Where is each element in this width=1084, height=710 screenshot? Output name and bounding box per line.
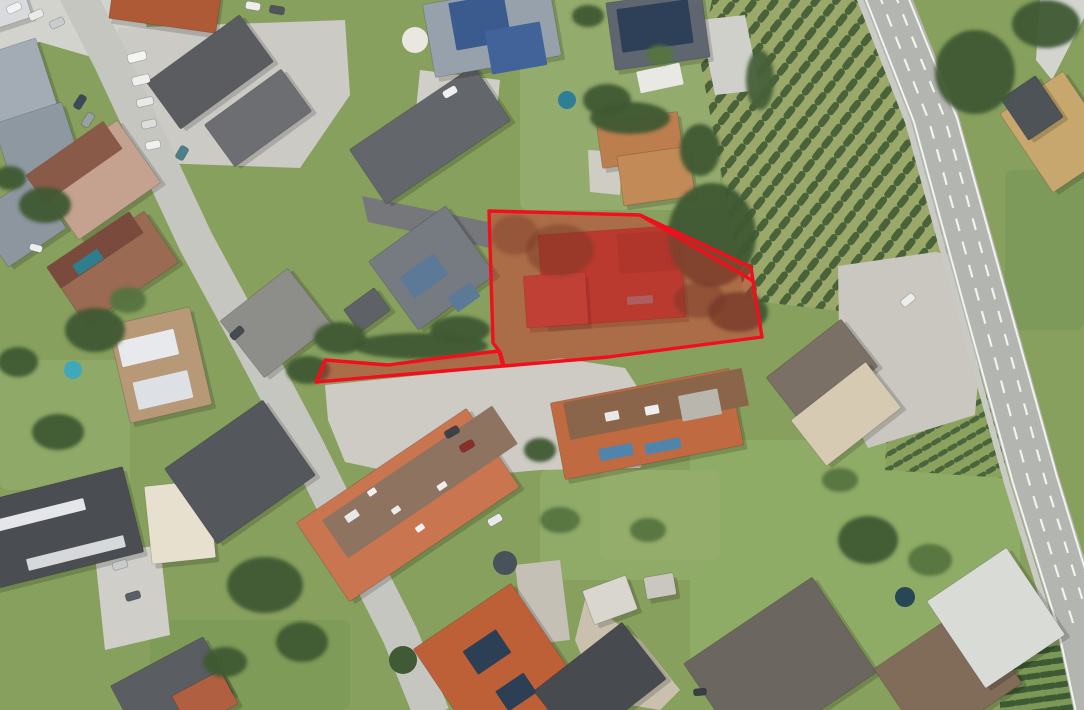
parked-car xyxy=(693,688,707,696)
aerial-map-view[interactable] xyxy=(0,0,1084,710)
tree xyxy=(590,102,670,134)
tree xyxy=(630,518,666,542)
tree xyxy=(227,557,303,613)
tree xyxy=(276,622,328,662)
tree xyxy=(746,50,774,110)
tree xyxy=(572,5,604,27)
tree xyxy=(935,30,1015,114)
round-pool xyxy=(64,361,82,379)
grass-patch xyxy=(600,470,720,560)
tree xyxy=(908,544,952,576)
pool-cover xyxy=(493,551,517,575)
tree xyxy=(19,187,71,223)
street-tree xyxy=(389,646,417,674)
tree xyxy=(430,316,490,344)
tree xyxy=(110,287,146,313)
white-parasol xyxy=(402,27,428,53)
aerial-imagery xyxy=(0,0,1084,710)
tree xyxy=(838,516,898,564)
grass-patch xyxy=(1005,170,1084,330)
tree xyxy=(1012,0,1080,48)
tree xyxy=(203,647,247,677)
shed-2 xyxy=(643,573,676,600)
tree xyxy=(540,507,580,533)
pool-dome xyxy=(558,91,576,109)
tree xyxy=(32,414,84,450)
tree xyxy=(65,308,125,352)
tree xyxy=(822,468,858,492)
tree xyxy=(646,45,674,65)
tree xyxy=(524,438,556,462)
tree xyxy=(680,124,720,176)
trampoline xyxy=(895,587,915,607)
